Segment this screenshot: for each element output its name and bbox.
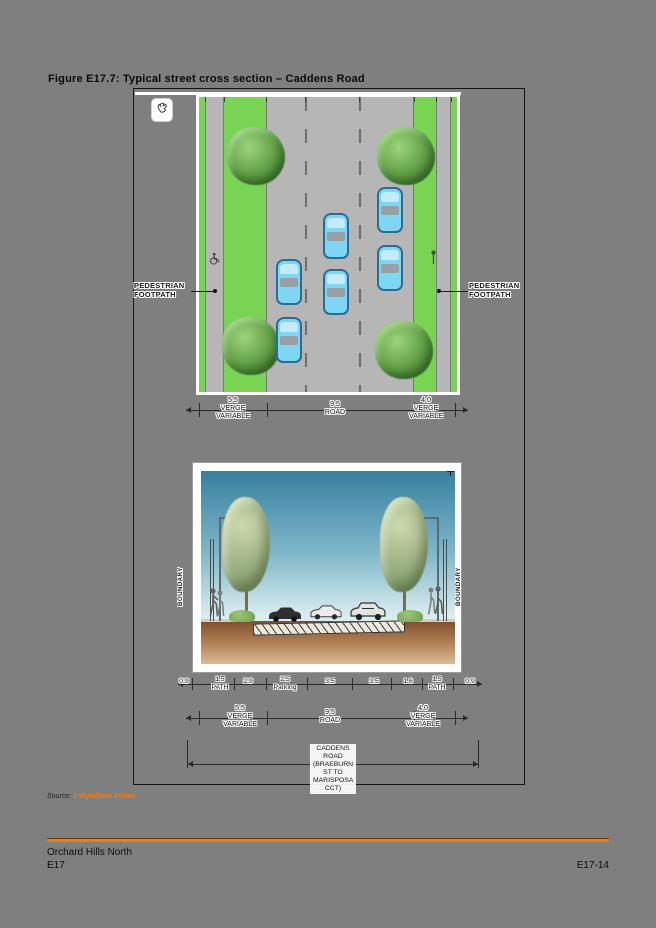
source-link[interactable]: J Wyndham Prince [73, 793, 136, 800]
shrub-left [229, 610, 255, 622]
pedestrian-footpath-label-left: PEDESTRIAN FOOTPATH [134, 281, 196, 299]
corner-tick [447, 471, 454, 472]
boundary-label-right: BOUNDARY [455, 548, 462, 606]
car-plan [377, 187, 403, 233]
car-plan [276, 317, 302, 363]
document-page: Figure E17.7: Typical street cross secti… [0, 0, 656, 928]
road-extent-label: CADDENS ROAD (BRAEBURN ST TO MARISPOSA C… [310, 744, 356, 794]
leader-dot-right [437, 289, 441, 293]
dim-road: 9.5ROAD [325, 401, 345, 417]
car-plan [323, 269, 349, 315]
footer-page-number: E17-14 [47, 860, 609, 871]
wheelchair-icon [209, 252, 220, 271]
dim-verge-right: 4.0VERGEVARIABLE [409, 397, 443, 421]
source-line: Source: J Wyndham Prince [47, 793, 136, 800]
dim-verge-right-2: 4.0VERGEVARIABLE [406, 705, 440, 729]
cross-section-panel [192, 462, 462, 673]
dim-verge-left-2: 5.5VERGEVARIABLE [223, 705, 257, 729]
hand-tool-button[interactable] [152, 99, 172, 121]
car-plan [323, 213, 349, 259]
tree-plan-bottom-right [375, 321, 433, 379]
boundary-label-left: BOUNDARY [177, 548, 184, 606]
dim-road-2: 9.5ROAD [320, 709, 340, 725]
leader-line-left [191, 291, 213, 292]
cross-section-drawing [201, 471, 455, 664]
hand-tool-icon [155, 101, 169, 120]
pedestrians-icon-left [207, 587, 225, 626]
shrub-right [397, 610, 423, 622]
footer-rule [47, 838, 609, 842]
plan-drawing [199, 97, 457, 392]
car-plan [377, 245, 403, 291]
car-plan [276, 259, 302, 305]
car-section-dark [267, 605, 303, 628]
leader-dot-left [213, 289, 217, 293]
source-prefix: Source: [47, 793, 71, 800]
plan-view [196, 94, 460, 395]
leader-line-right [440, 291, 468, 292]
tree-plan-top-left [227, 127, 285, 185]
pedestrians-icon-right [426, 585, 444, 624]
plan-verge-edge-right [451, 97, 457, 392]
figure-title: Figure E17.7: Typical street cross secti… [48, 73, 365, 85]
tree-plan-bottom-left [222, 317, 280, 375]
boundary-line-right [446, 539, 447, 621]
plan-footpath-right [436, 97, 451, 392]
signpost-icon [429, 250, 438, 270]
pedestrian-footpath-label-right: PEDESTRIAN FOOTPATH [469, 281, 531, 299]
footer-project: Orchard Hills North [47, 847, 132, 858]
tree-plan-top-right [377, 127, 435, 185]
dim-verge-left: 5.5VERGEVARIABLE [216, 397, 250, 421]
car-section-suv [349, 600, 387, 626]
car-section-light [309, 603, 343, 626]
